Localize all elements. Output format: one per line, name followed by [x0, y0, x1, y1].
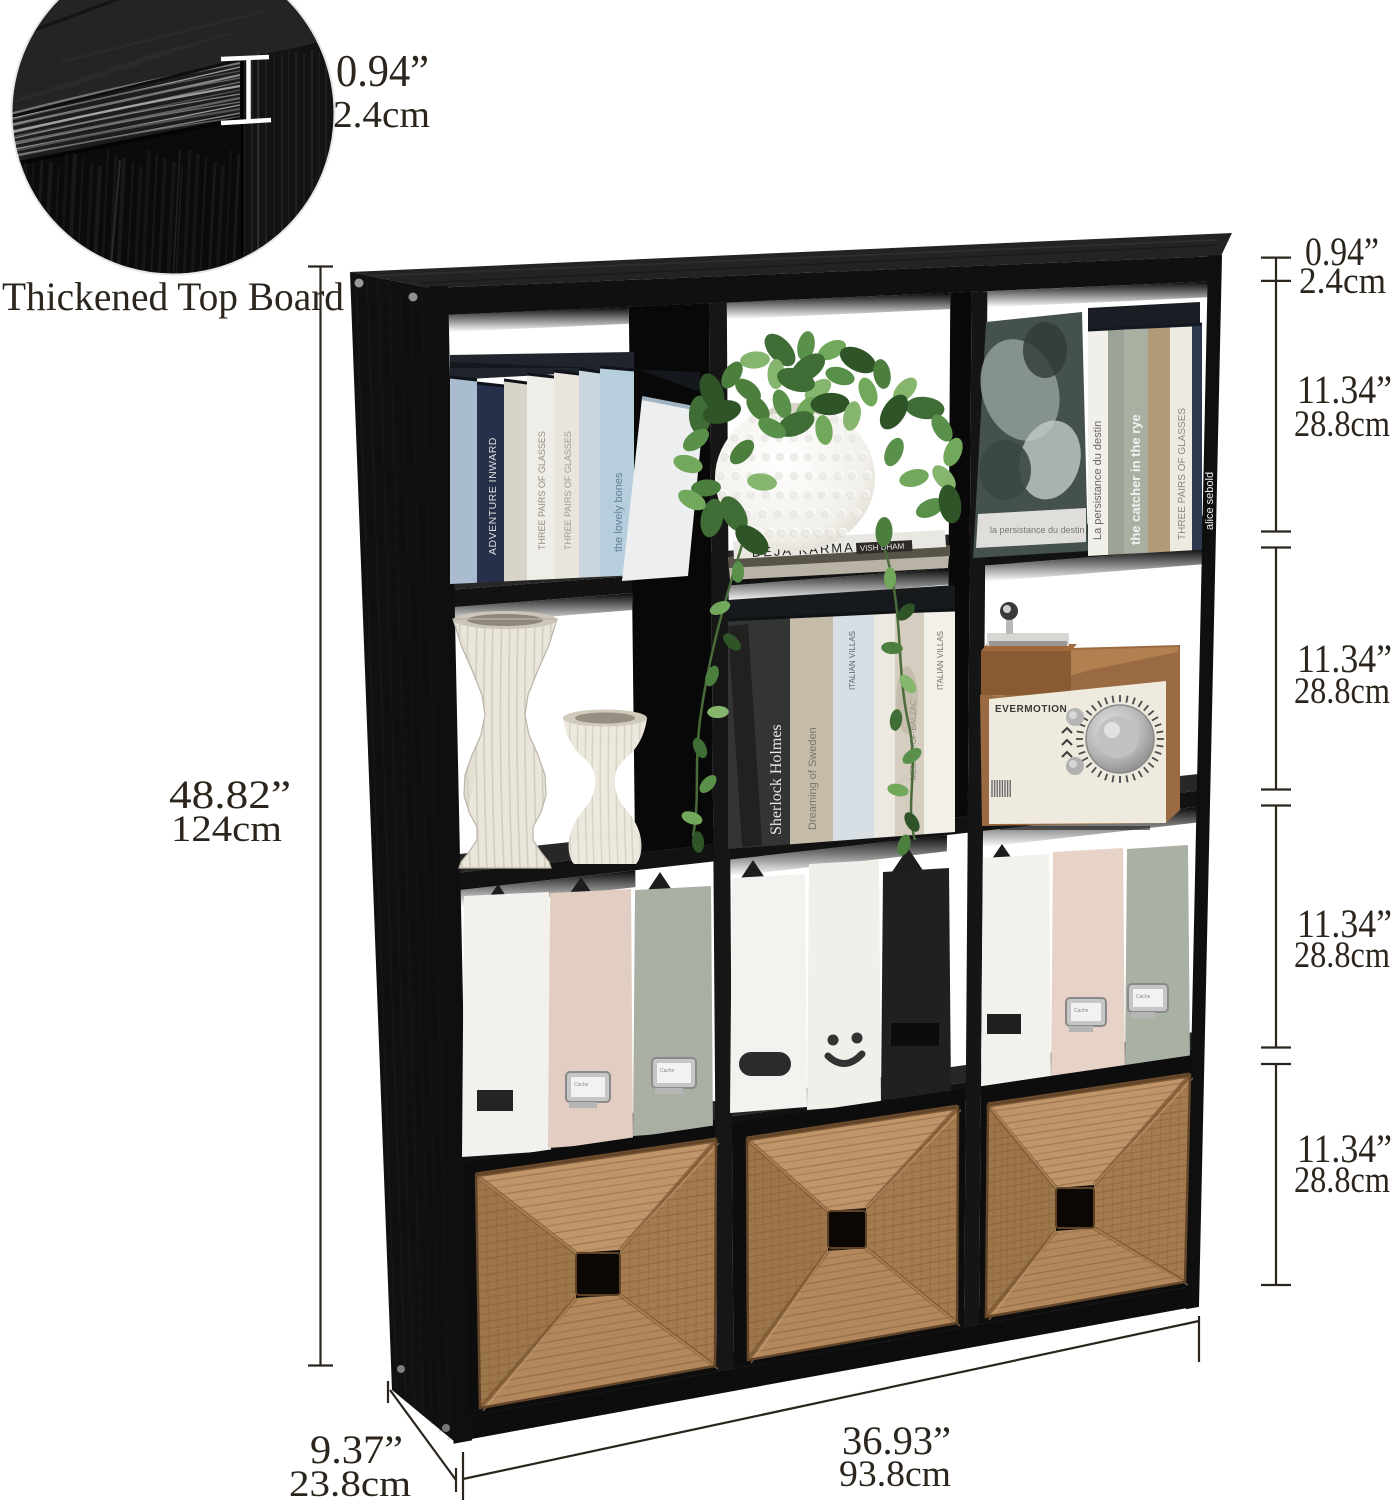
- svg-text:EVERMOTION: EVERMOTION: [995, 704, 1067, 715]
- svg-text:2.4cm: 2.4cm: [1299, 261, 1386, 302]
- svg-text:Dreaming of Sweden: Dreaming of Sweden: [807, 727, 819, 830]
- svg-text:28.8cm: 28.8cm: [1294, 671, 1390, 712]
- svg-text:la persistance du destin: la persistance du destin: [990, 525, 1085, 535]
- svg-text:ADVENTURE INWARD: ADVENTURE INWARD: [487, 437, 499, 555]
- svg-text:Cache: Cache: [660, 1068, 675, 1074]
- svg-text:2.4cm: 2.4cm: [333, 94, 430, 136]
- svg-text:Thickened Top Board: Thickened Top Board: [2, 274, 344, 319]
- svg-text:ITALIAN VILLAS: ITALIAN VILLAS: [936, 631, 945, 690]
- svg-text:28.8cm: 28.8cm: [1294, 935, 1390, 976]
- svg-text:28.8cm: 28.8cm: [1294, 1160, 1390, 1201]
- svg-text:23.8cm: 23.8cm: [289, 1464, 411, 1500]
- svg-text:THREE PAIRS OF GLASSES: THREE PAIRS OF GLASSES: [537, 431, 547, 550]
- svg-text:93.8cm: 93.8cm: [839, 1454, 951, 1495]
- svg-text:124cm: 124cm: [171, 809, 282, 850]
- svg-text:THREE PAIRS OF GLASSES: THREE PAIRS OF GLASSES: [563, 431, 573, 550]
- svg-text:La persistance du destin: La persistance du destin: [1092, 421, 1104, 540]
- svg-text:alice sebold: alice sebold: [1204, 472, 1216, 530]
- svg-text:ITALIAN VILLAS: ITALIAN VILLAS: [848, 631, 857, 690]
- svg-text:0.94”: 0.94”: [336, 46, 429, 96]
- svg-text:the catcher in the rye: the catcher in the rye: [1128, 414, 1143, 545]
- svg-text:Cache: Cache: [1136, 994, 1151, 1000]
- svg-text:Cache: Cache: [574, 1082, 589, 1088]
- svg-text:28.8cm: 28.8cm: [1294, 404, 1390, 445]
- svg-text:Cache: Cache: [1074, 1008, 1089, 1014]
- svg-text:the lovely bones: the lovely bones: [613, 472, 625, 552]
- svg-text:THREE PAIRS OF GLASSES: THREE PAIRS OF GLASSES: [1177, 408, 1188, 540]
- svg-text:Sherlock Holmes: Sherlock Holmes: [768, 724, 785, 835]
